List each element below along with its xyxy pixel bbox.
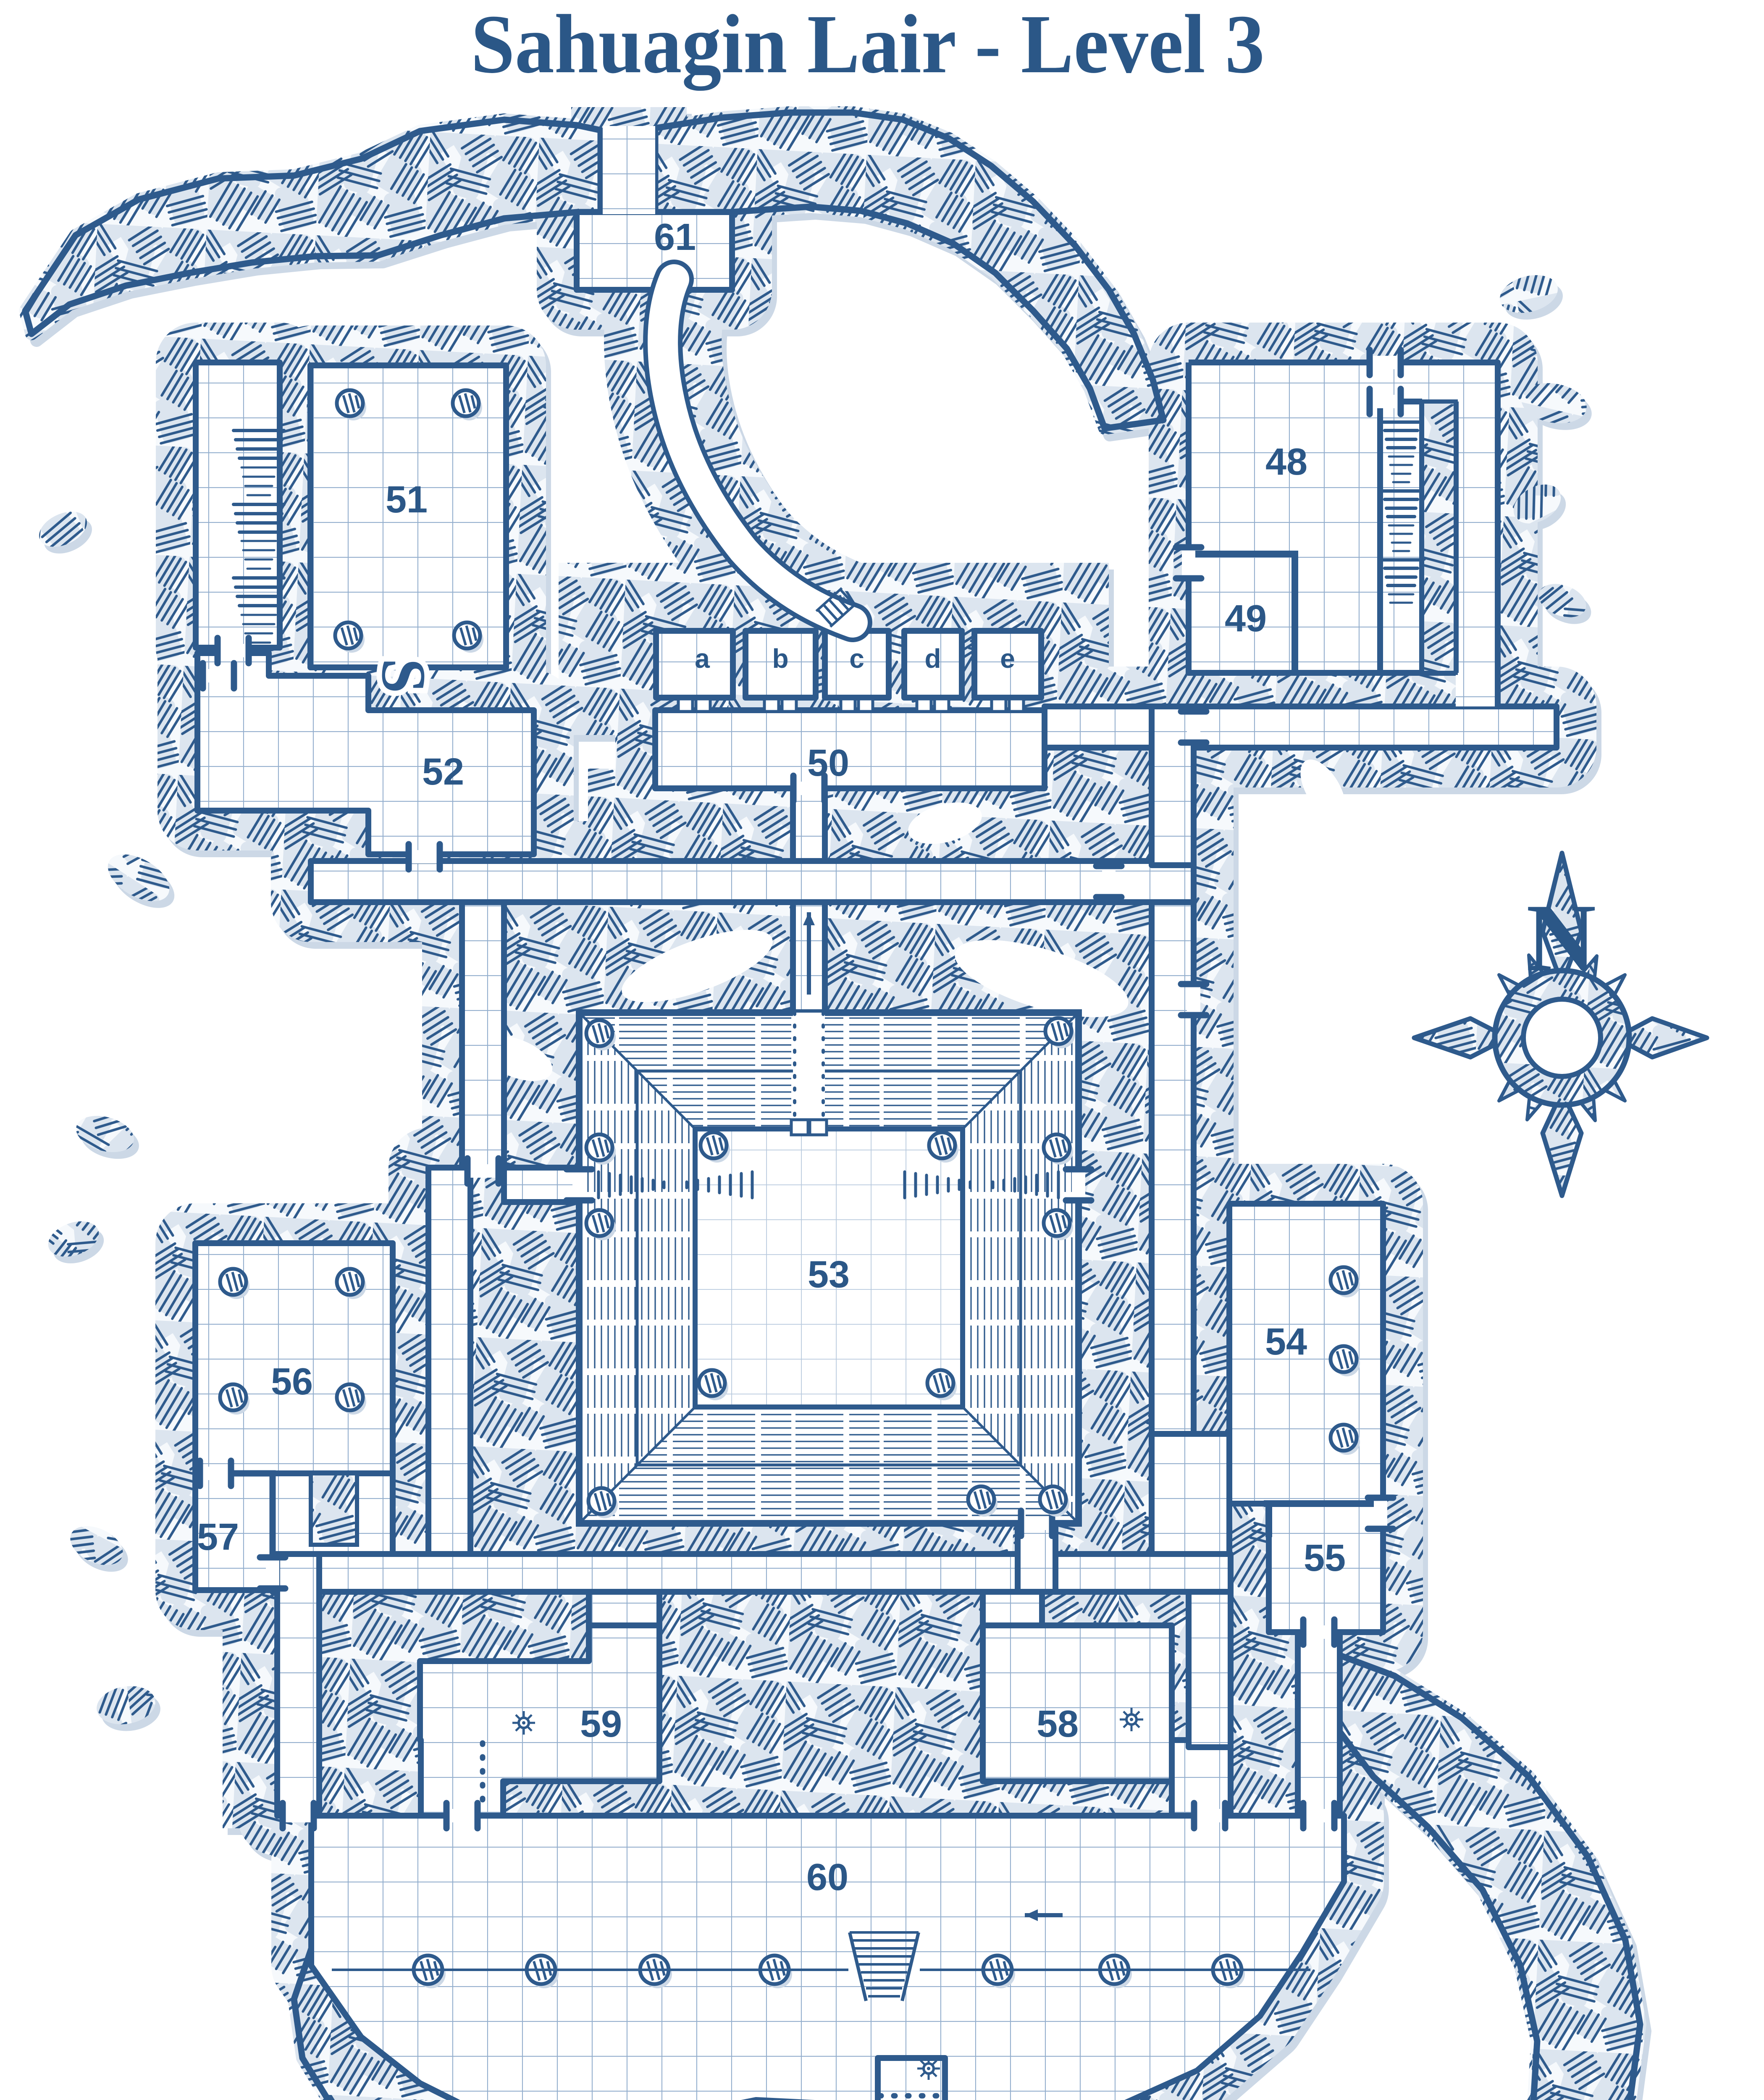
svg-text:55: 55 (1304, 1537, 1346, 1579)
svg-text:58: 58 (1037, 1703, 1079, 1745)
svg-text:60: 60 (806, 1856, 848, 1898)
svg-text:a: a (695, 643, 710, 674)
svg-text:S: S (369, 658, 438, 693)
svg-text:59: 59 (580, 1703, 622, 1745)
svg-text:56: 56 (271, 1361, 313, 1403)
svg-text:49: 49 (1225, 598, 1267, 640)
svg-text:54: 54 (1265, 1321, 1307, 1363)
svg-text:48: 48 (1265, 441, 1307, 483)
svg-text:53: 53 (808, 1254, 850, 1296)
svg-text:N: N (1526, 884, 1596, 991)
svg-text:d: d (924, 643, 941, 674)
svg-text:51: 51 (386, 479, 428, 521)
svg-text:b: b (772, 643, 788, 674)
svg-text:50: 50 (807, 742, 849, 784)
svg-text:c: c (849, 643, 864, 674)
svg-text:57: 57 (197, 1516, 239, 1558)
svg-text:Sahuagin Lair - Level 3: Sahuagin Lair - Level 3 (471, 0, 1265, 91)
svg-text:e: e (1000, 643, 1015, 674)
svg-text:52: 52 (422, 751, 464, 793)
svg-text:61: 61 (654, 216, 696, 258)
